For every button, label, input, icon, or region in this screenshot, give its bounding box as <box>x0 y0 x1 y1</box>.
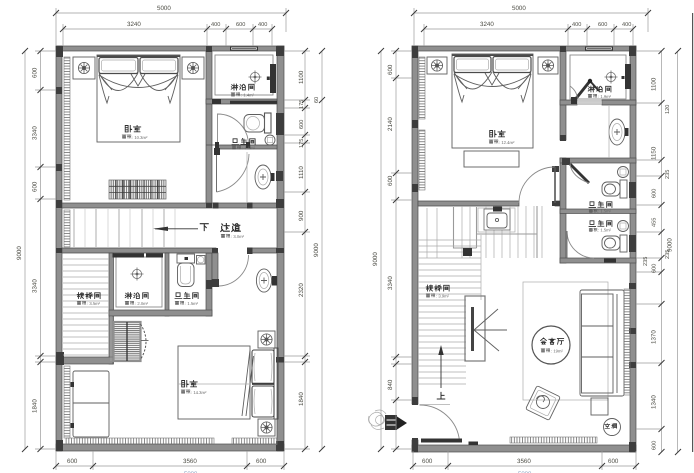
svg-text:235: 235 <box>643 257 649 266</box>
svg-text:1840: 1840 <box>298 392 305 406</box>
svg-text:3240: 3240 <box>127 21 141 28</box>
svg-text:600: 600 <box>32 181 39 192</box>
svg-text:175: 175 <box>299 139 305 148</box>
svg-text:3340: 3340 <box>387 276 394 290</box>
svg-text:: 1.4m²: : 1.4m² <box>241 93 255 98</box>
svg-text:2140: 2140 <box>387 117 394 131</box>
svg-text:60: 60 <box>314 97 320 103</box>
svg-text:600: 600 <box>299 120 305 129</box>
svg-text:1150: 1150 <box>651 146 658 160</box>
svg-text:600: 600 <box>652 189 658 198</box>
svg-text:: 10.3m²: : 10.3m² <box>132 135 148 140</box>
svg-text:: 14.3m²: : 14.3m² <box>191 390 207 395</box>
svg-text:1110: 1110 <box>298 166 305 179</box>
svg-text:9000: 9000 <box>313 243 320 257</box>
svg-text:600: 600 <box>256 458 267 465</box>
svg-text:: 1.5m²: : 1.5m² <box>185 301 199 306</box>
svg-text:: 1.5m²: : 1.5m² <box>598 209 612 214</box>
svg-text:840: 840 <box>387 379 394 390</box>
svg-text:3560: 3560 <box>517 458 531 465</box>
svg-text:400: 400 <box>258 22 267 28</box>
svg-text:: 12.4m²: : 12.4m² <box>499 140 515 145</box>
svg-text:900: 900 <box>298 210 305 221</box>
svg-text:600: 600 <box>387 175 394 186</box>
svg-text:: 3.0m²: : 3.0m² <box>231 234 245 239</box>
svg-text:600: 600 <box>608 458 619 465</box>
svg-text:600: 600 <box>32 67 39 78</box>
svg-text:600: 600 <box>67 458 78 465</box>
svg-text:9000: 9000 <box>372 252 379 266</box>
svg-text:1100: 1100 <box>651 77 658 91</box>
svg-text:3240: 3240 <box>480 21 494 28</box>
svg-text:5000: 5000 <box>512 5 526 12</box>
svg-text:9000: 9000 <box>667 238 674 252</box>
svg-text:600: 600 <box>236 22 245 28</box>
svg-text:235: 235 <box>665 170 671 179</box>
svg-text:: 1.5m²: : 1.5m² <box>242 146 256 151</box>
svg-text:175: 175 <box>299 100 305 109</box>
svg-text:600: 600 <box>652 264 658 273</box>
svg-text:1340: 1340 <box>651 395 658 409</box>
svg-text:2320: 2320 <box>298 283 305 297</box>
svg-text:: 19m²: : 19m² <box>551 349 563 354</box>
svg-text:9000: 9000 <box>16 246 23 260</box>
svg-text:455: 455 <box>652 218 658 227</box>
svg-text:120: 120 <box>665 105 671 114</box>
svg-text:600: 600 <box>387 64 394 75</box>
svg-text:400: 400 <box>211 22 220 28</box>
svg-text:5000: 5000 <box>157 5 171 12</box>
svg-text:1370: 1370 <box>651 330 658 344</box>
svg-text:1100: 1100 <box>298 70 305 84</box>
svg-text:400: 400 <box>572 22 581 28</box>
svg-text:400: 400 <box>622 22 631 28</box>
svg-text:: 3.5m²: : 3.5m² <box>87 301 101 306</box>
svg-text:600: 600 <box>422 458 433 465</box>
svg-text:: 2.0m²: : 2.0m² <box>135 301 149 306</box>
svg-text:: 1.9m²: : 1.9m² <box>598 94 612 99</box>
svg-text:3340: 3340 <box>32 279 39 293</box>
svg-text:: 1.5m²: : 1.5m² <box>598 228 612 233</box>
svg-text:: 3.9m²: : 3.9m² <box>436 294 450 299</box>
svg-text:3560: 3560 <box>183 458 197 465</box>
svg-text:3340: 3340 <box>32 126 39 140</box>
svg-text:600: 600 <box>652 441 658 450</box>
svg-text:1840: 1840 <box>32 399 39 413</box>
svg-text:600: 600 <box>598 22 607 28</box>
